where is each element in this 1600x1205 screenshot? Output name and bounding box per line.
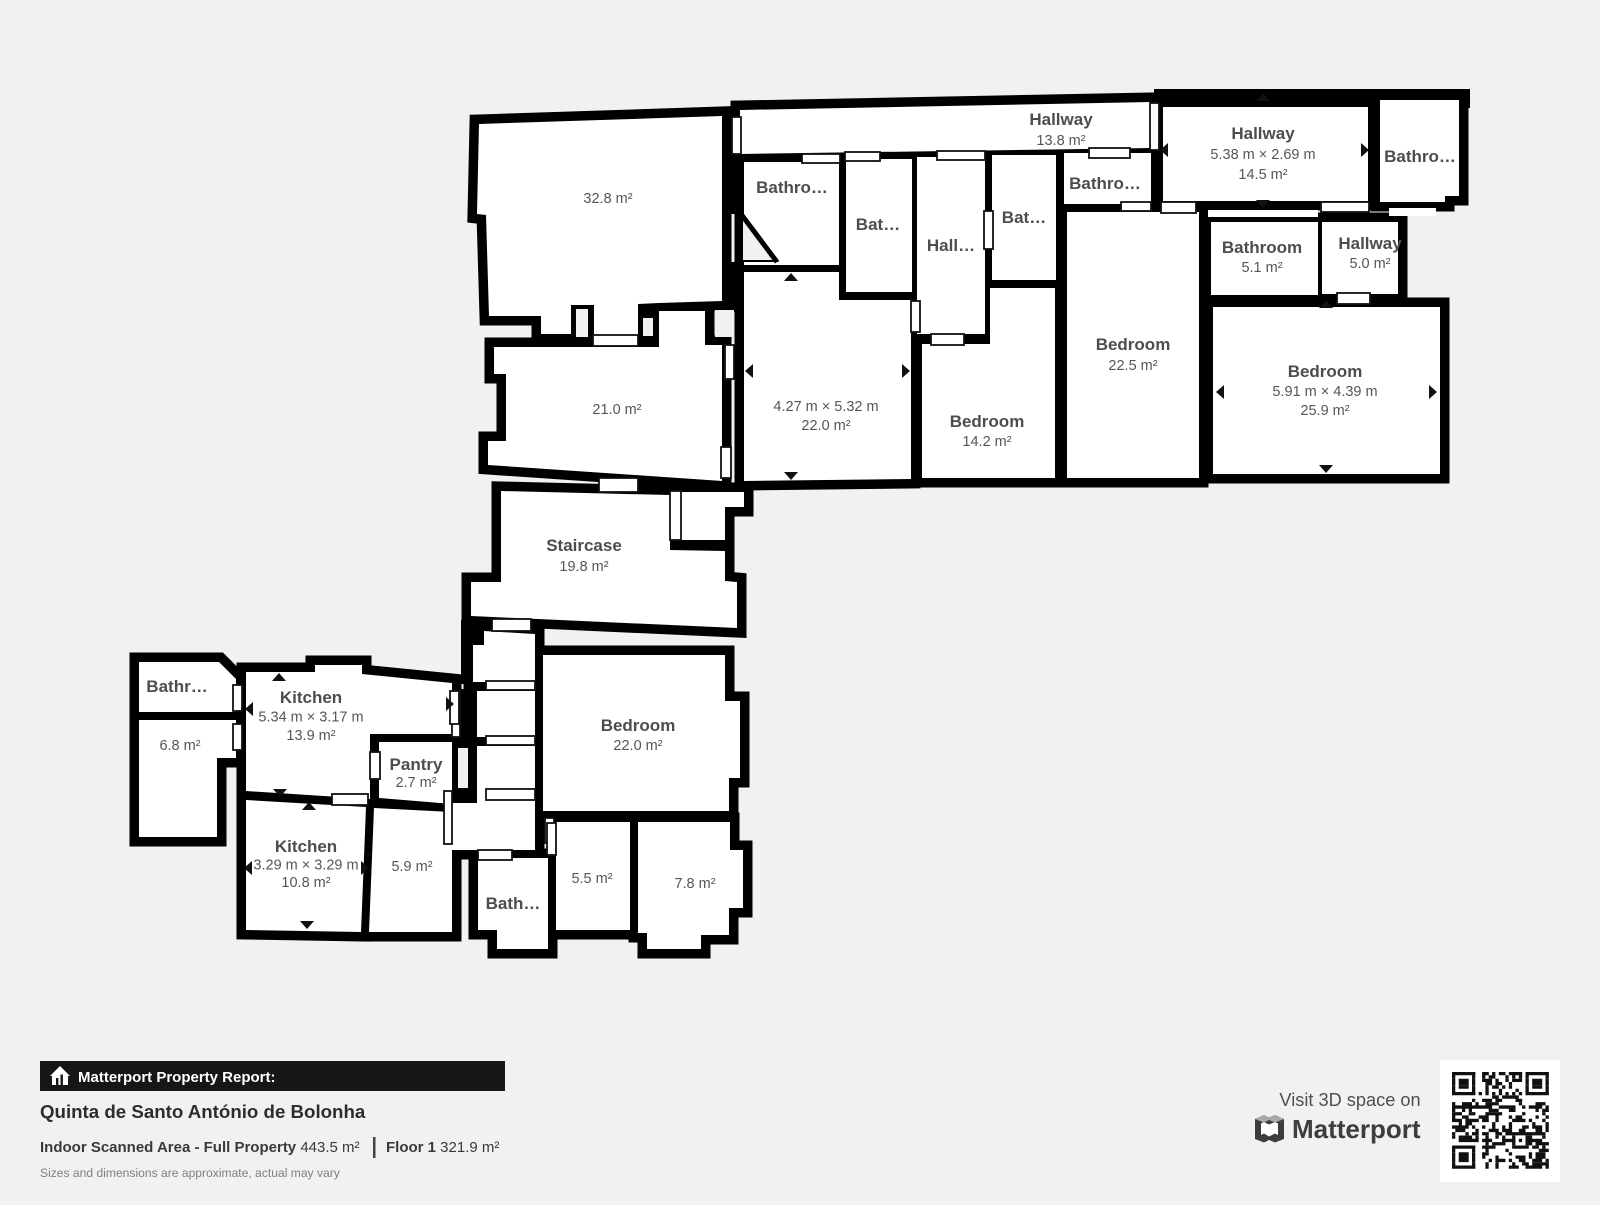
svg-text:6.8 m²: 6.8 m² [159, 738, 200, 754]
svg-text:Sizes and dimensions are appro: Sizes and dimensions are approximate, ac… [40, 1166, 341, 1180]
svg-text:5.38 m × 2.69 m: 5.38 m × 2.69 m [1210, 147, 1315, 163]
svg-text:Bathro…: Bathro… [756, 178, 828, 197]
svg-text:Kitchen: Kitchen [275, 837, 337, 856]
svg-text:21.0 m²: 21.0 m² [592, 402, 641, 418]
svg-text:Staircase: Staircase [546, 536, 622, 555]
svg-text:5.5 m²: 5.5 m² [571, 871, 612, 887]
svg-text:3.29 m × 3.29 m: 3.29 m × 3.29 m [253, 858, 358, 874]
svg-text:Bat…: Bat… [856, 215, 900, 234]
svg-text:Visit 3D space on: Visit 3D space on [1279, 1090, 1420, 1110]
svg-text:5.91 m × 4.39 m: 5.91 m × 4.39 m [1272, 384, 1377, 400]
svg-text:22.5 m²: 22.5 m² [1108, 358, 1157, 374]
svg-text:Bat…: Bat… [1002, 208, 1046, 227]
svg-text:Hallway: Hallway [1231, 124, 1295, 143]
svg-text:7.8 m²: 7.8 m² [674, 876, 715, 892]
svg-text:Bathro…: Bathro… [1069, 174, 1141, 193]
svg-text:5.34 m × 3.17 m: 5.34 m × 3.17 m [258, 710, 363, 726]
svg-text:Bedroom: Bedroom [601, 716, 676, 735]
svg-text:Bathr…: Bathr… [146, 677, 207, 696]
svg-text:Bedroom: Bedroom [1288, 362, 1363, 381]
svg-text:Bedroom: Bedroom [1096, 335, 1171, 354]
svg-text:13.8 m²: 13.8 m² [1036, 133, 1085, 149]
svg-text:Matterport Property Report:: Matterport Property Report: [78, 1069, 276, 1086]
svg-text:Hall…: Hall… [927, 236, 975, 255]
svg-text:Indoor Scanned Area - Full Pro: Indoor Scanned Area - Full Property 443.… [40, 1139, 360, 1156]
svg-text:25.9 m²: 25.9 m² [1300, 403, 1349, 419]
svg-text:19.8 m²: 19.8 m² [559, 559, 608, 575]
svg-text:14.2 m²: 14.2 m² [962, 434, 1011, 450]
svg-text:4.27 m × 5.32 m: 4.27 m × 5.32 m [773, 399, 878, 415]
svg-text:10.8 m²: 10.8 m² [281, 875, 330, 891]
svg-text:5.0 m²: 5.0 m² [1349, 256, 1390, 272]
svg-text:Bath…: Bath… [486, 894, 541, 913]
svg-text:Bathro…: Bathro… [1384, 147, 1456, 166]
svg-text:22.0 m²: 22.0 m² [613, 738, 662, 754]
svg-text:13.9 m²: 13.9 m² [286, 728, 335, 744]
svg-text:2.7 m²: 2.7 m² [395, 775, 436, 791]
svg-text:Pantry: Pantry [390, 755, 443, 774]
svg-text:Kitchen: Kitchen [280, 688, 342, 707]
svg-text:32.8 m²: 32.8 m² [583, 191, 632, 207]
svg-text:Floor 1 321.9 m²: Floor 1 321.9 m² [386, 1139, 499, 1156]
svg-text:22.0 m²: 22.0 m² [801, 418, 850, 434]
svg-text:Hallway: Hallway [1338, 234, 1402, 253]
svg-text:Bedroom: Bedroom [950, 412, 1025, 431]
svg-text:Bathroom: Bathroom [1222, 238, 1302, 257]
svg-text:5.9 m²: 5.9 m² [391, 859, 432, 875]
svg-text:5.1 m²: 5.1 m² [1241, 260, 1282, 276]
svg-text:Matterport: Matterport [1292, 1114, 1421, 1144]
svg-text:Quinta de Santo António de Bol: Quinta de Santo António de Bolonha [40, 1101, 366, 1122]
svg-text:14.5 m²: 14.5 m² [1238, 167, 1287, 183]
svg-text:Hallway: Hallway [1029, 110, 1093, 129]
